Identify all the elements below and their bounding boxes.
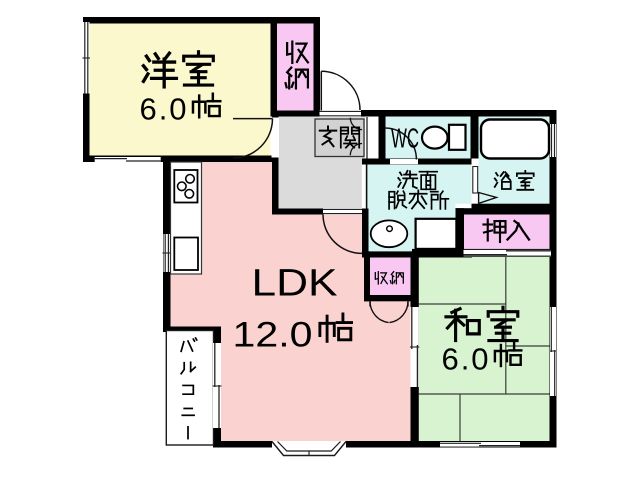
svg-text:6.0: 6.0 <box>442 342 489 377</box>
svg-text:WC: WC <box>391 123 419 154</box>
svg-text:LDK: LDK <box>252 263 338 305</box>
svg-text:6.0: 6.0 <box>140 92 187 127</box>
svg-text:12.0: 12.0 <box>233 316 313 355</box>
